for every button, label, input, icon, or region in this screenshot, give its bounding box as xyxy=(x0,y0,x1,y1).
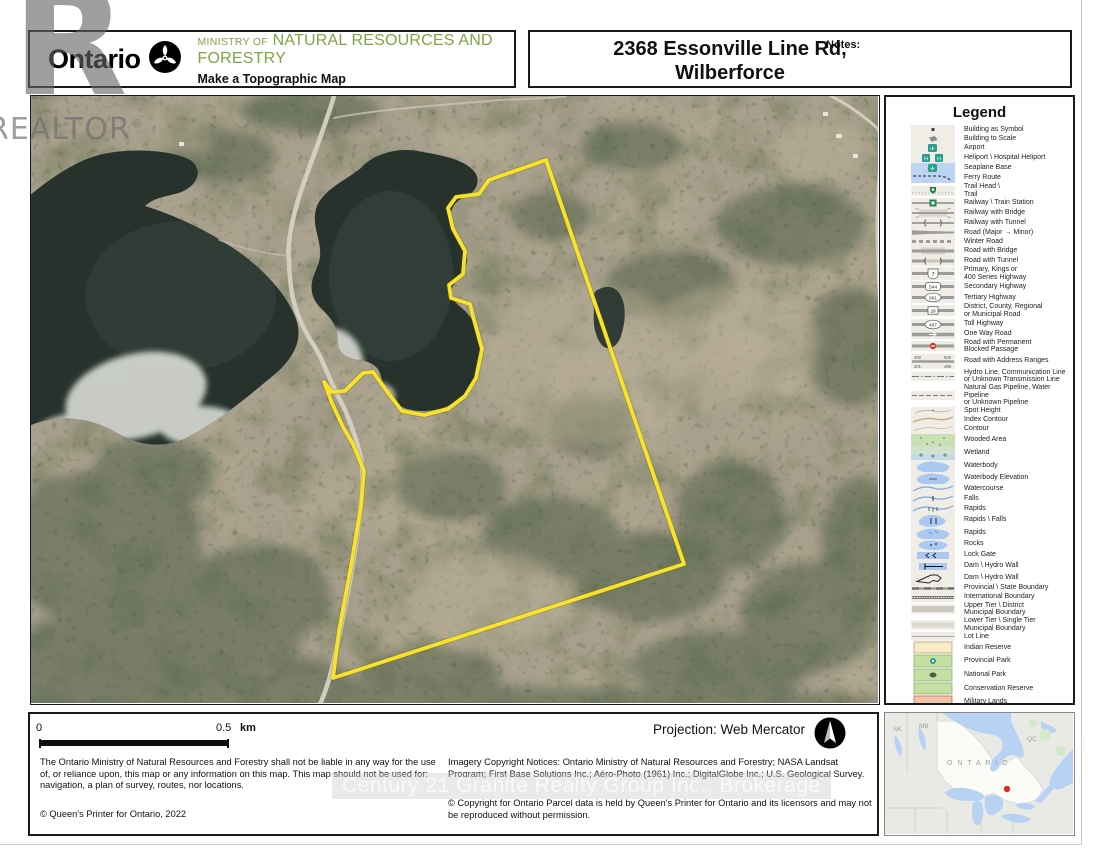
legend-symbol-upper-tier-icon xyxy=(910,604,956,614)
legend-item: 407Toll Highway xyxy=(886,319,1073,330)
ontario-logo: Ontario xyxy=(48,40,182,79)
app-title: Make a Topographic Map xyxy=(198,72,514,86)
legend-item: Road with Bridge xyxy=(886,246,1073,256)
legend-item-label: Military Lands xyxy=(964,698,1007,705)
legend-symbol-dam2-icon xyxy=(910,572,956,584)
title-notes-box: 2368 Essonville Line Rd, Wilberforce Not… xyxy=(528,30,1072,88)
legend-item-label: Rapids xyxy=(964,529,986,537)
inset-label-mb: MB xyxy=(919,723,929,730)
legend-item: Ferry Route xyxy=(886,173,1073,183)
legend-item-label: Road (Major → Minor) xyxy=(964,229,1033,237)
legend-symbol-oneway-icon xyxy=(910,330,956,339)
svg-text:✈: ✈ xyxy=(930,166,935,173)
legend-item: 28District, County, Regional or Municipa… xyxy=(886,303,1073,318)
legend-item: Road with Permanent Blocked Passage xyxy=(886,339,1073,354)
legend-symbol-railway-tunnel-icon xyxy=(910,218,956,228)
legend-symbol-toll-hwy-icon: 407 xyxy=(910,319,956,330)
legend-item-label: Heliport \ Hospital Heliport xyxy=(964,154,1045,162)
svg-text:407: 407 xyxy=(929,322,937,327)
legend-item-label: Road with Tunnel xyxy=(964,257,1018,265)
legend-symbol-rocks-icon xyxy=(910,539,956,550)
legend-item-label: Building to Scale xyxy=(964,135,1016,143)
legend-item-label: Dam \ Hydro Wall xyxy=(964,562,1019,570)
legend-symbol-airport-icon: ✈ xyxy=(910,143,956,153)
legend-symbol-contour-icon xyxy=(910,425,956,434)
legend-item: Trail Head \ Trail xyxy=(886,183,1073,198)
north-arrow-icon xyxy=(813,716,847,755)
legend-item: Building as Symbol xyxy=(886,125,1073,134)
legend-item-label: One Way Road xyxy=(964,330,1012,338)
legend-symbol-road-major-minor-icon xyxy=(910,228,956,237)
legend-item-label: Road with Bridge xyxy=(964,247,1017,255)
legend-title: Legend xyxy=(886,104,1073,121)
legend-item-label: Primary, Kings or 400 Series Highway xyxy=(964,266,1026,281)
legend-symbol-watercourse-icon xyxy=(910,484,956,494)
legend-panel: Legend Building as SymbolBuilding to Sca… xyxy=(884,95,1075,705)
legend-symbol-indian-reserve-icon xyxy=(910,641,956,654)
disclaimer-text: The Ontario Ministry of Natural Resource… xyxy=(40,757,440,792)
svg-text:401: 401 xyxy=(914,364,922,369)
legend-item-label: Winter Road xyxy=(964,238,1003,246)
legend-symbol-secondary-hwy-icon: 544 xyxy=(910,281,956,292)
scale-unit-label: km xyxy=(240,722,256,734)
svg-text:400: 400 xyxy=(914,355,922,360)
projection-label: Projection: Web Mercator xyxy=(653,722,805,737)
svg-text:544: 544 xyxy=(929,285,937,291)
legend-item: Waterbody Elevation xyxy=(886,472,1073,484)
legend-item: Dam \ Hydro Wall xyxy=(886,561,1073,572)
legend-symbol-railway-bridge-icon xyxy=(910,208,956,218)
legend-symbol-rapids-line-icon xyxy=(910,504,956,514)
legend-item: Indian Reserve xyxy=(886,641,1073,654)
legend-item: Watercourse xyxy=(886,484,1073,494)
notes-label: Notes: xyxy=(826,39,860,51)
trillium-icon xyxy=(148,40,182,79)
aerial-map-canvas xyxy=(31,96,878,703)
svg-text:801: 801 xyxy=(929,296,937,301)
legend-symbol-building-symbol-icon xyxy=(910,125,956,134)
legend-item: International Boundary xyxy=(886,593,1073,602)
legend-item-label: Road with Permanent Blocked Passage xyxy=(964,339,1031,354)
legend-symbol-rapids-falls-icon xyxy=(910,514,956,527)
legend-item: Winter Road xyxy=(886,237,1073,246)
legend-item-label: District, County, Regional or Municipal … xyxy=(964,303,1042,318)
legend-item: Dam \ Hydro Wall xyxy=(886,572,1073,584)
legend-item-label: Natural Gas Pipeline, Water Pipeline or … xyxy=(964,384,1073,407)
legend-item: Falls xyxy=(886,494,1073,504)
svg-text:500: 500 xyxy=(944,355,952,360)
legend-item-label: Wooded Area xyxy=(964,436,1006,444)
inset-label-ontario: O N T A R I O xyxy=(947,760,1009,767)
legend-item-label: Rapids xyxy=(964,505,986,513)
legend-item-label: Provincial \ State Boundary xyxy=(964,584,1048,592)
legend-item-label: Railway \ Train Station xyxy=(964,199,1034,207)
legend-symbol-road-tunnel-icon xyxy=(910,256,956,266)
legend-items: Building as SymbolBuilding to Scale✈Airp… xyxy=(886,125,1073,705)
legend-item: Rapids xyxy=(886,504,1073,514)
legend-symbol-wetland-icon xyxy=(910,447,956,460)
legend-symbol-seaplane-icon: ✈ xyxy=(910,163,956,173)
inset-label-sk: SK xyxy=(893,726,902,733)
legend-item-label: Rapids \ Falls xyxy=(964,516,1006,524)
legend-item-label: Road with Address Ranges xyxy=(964,357,1048,365)
svg-text:28: 28 xyxy=(930,309,936,315)
legend-item-label: Trail Head \ Trail xyxy=(964,183,1000,198)
legend-item: Wooded Area xyxy=(886,434,1073,447)
legend-item: Railway with Bridge xyxy=(886,208,1073,218)
legend-item: Conservation Reserve xyxy=(886,682,1073,695)
legend-item-label: Contour xyxy=(964,425,989,433)
legend-item-label: Lock Gate xyxy=(964,551,996,559)
legend-symbol-lot-line-icon xyxy=(910,632,956,641)
legend-item-label: Wetland xyxy=(964,449,990,457)
imagery-copyright-text: Imagery Copyright Notices: Ontario Minis… xyxy=(448,757,872,780)
svg-text:499: 499 xyxy=(944,364,952,369)
legend-symbol-index-contour-icon xyxy=(910,416,956,425)
legend-item: Rapids \ Falls xyxy=(886,514,1073,527)
legend-item: Lower Tier \ Single Tier Municipal Bound… xyxy=(886,617,1073,632)
legend-symbol-falls-icon xyxy=(910,494,956,504)
scale-bar xyxy=(39,740,229,746)
legend-symbol-rapids-poly-icon xyxy=(910,527,956,539)
topographic-map-page: Ontario MINISTRY OF NATURAL RESOURCES A xyxy=(0,0,1100,850)
inset-location-marker xyxy=(1004,786,1010,792)
legend-item: 400500401499Road with Address Ranges xyxy=(886,354,1073,369)
legend-item-label: Provincial Park xyxy=(964,657,1011,665)
footer-panel: 0 0.5 km Projection: Web Mercator The On… xyxy=(28,712,879,836)
legend-symbol-municipal-road-icon: 28 xyxy=(910,305,956,316)
ministry-of-label: MINISTRY OF xyxy=(198,36,269,48)
legend-item-label: Indian Reserve xyxy=(964,644,1011,652)
legend-item: Contour xyxy=(886,425,1073,434)
legend-symbol-pipeline-icon xyxy=(910,391,956,400)
legend-item: Building to Scale xyxy=(886,134,1073,143)
legend-symbol-address-ranges-icon: 400500401499 xyxy=(910,354,956,369)
legend-item: Provincial Park xyxy=(886,654,1073,668)
legend-symbol-military-icon xyxy=(910,695,956,705)
legend-item-label: International Boundary xyxy=(964,593,1034,601)
legend-item: National Park xyxy=(886,668,1073,682)
legend-symbol-hydro-line-icon xyxy=(910,372,956,381)
legend-item: 544Secondary Highway xyxy=(886,281,1073,292)
legend-item: Road (Major → Minor) xyxy=(886,228,1073,237)
legend-item: Waterbody xyxy=(886,460,1073,472)
svg-text:✈: ✈ xyxy=(930,146,935,153)
legend-item-label: Secondary Highway xyxy=(964,283,1026,291)
legend-item: Index Contour xyxy=(886,416,1073,425)
legend-item-label: Conservation Reserve xyxy=(964,685,1033,693)
legend-item-label: Waterbody Elevation xyxy=(964,474,1028,482)
scale-distance-label: 0.5 xyxy=(216,722,231,734)
legend-item-label: Seaplane Base xyxy=(964,164,1011,172)
legend-symbol-waterbody-icon xyxy=(910,460,956,472)
legend-symbol-conservation-icon xyxy=(910,682,956,695)
legend-symbol-heliport-icon: HH xyxy=(910,153,956,163)
legend-item-label: Index Contour xyxy=(964,416,1008,424)
ministry-title-block: MINISTRY OF NATURAL RESOURCES AND FOREST… xyxy=(198,32,514,86)
legend-symbol-prov-boundary-icon xyxy=(910,584,956,593)
legend-item: ✈Seaplane Base xyxy=(886,163,1073,173)
legend-symbol-road-bridge-icon xyxy=(910,246,956,256)
legend-item-label: Railway with Tunnel xyxy=(964,219,1026,227)
locator-inset-map: SK MB O N T A R I O QC xyxy=(884,712,1075,836)
legend-item-label: Building as Symbol xyxy=(964,126,1024,134)
legend-item-label: Lot Line xyxy=(964,633,989,641)
legend-item: Military Lands xyxy=(886,695,1073,705)
legend-symbol-building-scale-icon xyxy=(910,134,956,143)
legend-item: Natural Gas Pipeline, Water Pipeline or … xyxy=(886,384,1073,407)
legend-symbol-lower-tier-icon xyxy=(910,620,956,630)
legend-symbol-blocked-icon xyxy=(910,341,956,351)
legend-item: Upper Tier \ District Municipal Boundary xyxy=(886,602,1073,617)
queens-printer-text: © Queen's Printer for Ontario, 2022 xyxy=(40,809,186,821)
legend-item-label: Hydro Line, Communication Line or Unknow… xyxy=(964,369,1066,384)
legend-symbol-railway-station-icon xyxy=(910,198,956,208)
legend-item-label: Falls xyxy=(964,495,979,503)
legend-item-label: Airport xyxy=(964,144,985,152)
legend-symbol-wooded-icon xyxy=(910,434,956,447)
legend-symbol-lock-gate-icon xyxy=(910,550,956,561)
legend-symbol-dam-icon xyxy=(910,561,956,572)
legend-symbol-tertiary-hwy-icon: 801 xyxy=(910,292,956,303)
scale-zero-label: 0 xyxy=(36,722,42,734)
legend-item: Provincial \ State Boundary xyxy=(886,584,1073,593)
legend-item: Road with Tunnel xyxy=(886,256,1073,266)
legend-item: One Way Road xyxy=(886,330,1073,339)
legend-item-label: Waterbody xyxy=(964,462,998,470)
legend-item-label: Railway with Bridge xyxy=(964,209,1025,217)
legend-item-label: Upper Tier \ District Municipal Boundary xyxy=(964,602,1025,617)
legend-symbol-winter-road-icon xyxy=(910,237,956,246)
svg-text:H: H xyxy=(937,156,941,162)
legend-item: Hydro Line, Communication Line or Unknow… xyxy=(886,369,1073,384)
legend-item: Rocks xyxy=(886,539,1073,550)
svg-text:7: 7 xyxy=(931,272,934,278)
legend-item-label: Lower Tier \ Single Tier Municipal Bound… xyxy=(964,617,1036,632)
legend-symbol-natl-park-icon xyxy=(910,668,956,682)
legend-item: Railway with Tunnel xyxy=(886,218,1073,228)
legend-item: Lot Line xyxy=(886,632,1073,641)
legend-item-label: Rocks xyxy=(964,540,983,548)
map-image xyxy=(30,95,880,705)
legend-symbol-prov-park-icon xyxy=(910,654,956,668)
legend-symbol-ferry-icon xyxy=(910,173,956,183)
legend-symbol-waterbody-elev-icon xyxy=(910,472,956,484)
legend-item: Rapids xyxy=(886,527,1073,539)
legend-item-label: National Park xyxy=(964,671,1006,679)
legend-symbol-spot-height-icon xyxy=(910,407,956,416)
legend-item: 801Tertiary Highway xyxy=(886,292,1073,303)
legend-item: Railway \ Train Station xyxy=(886,198,1073,208)
legend-symbol-primary-hwy-icon: 7 xyxy=(910,267,956,280)
legend-item: ✈Airport xyxy=(886,143,1073,153)
svg-text:H: H xyxy=(924,156,928,162)
inset-label-qc: QC xyxy=(1027,736,1037,743)
legend-item: HHHeliport \ Hospital Heliport xyxy=(886,153,1073,163)
legend-item-label: Dam \ Hydro Wall xyxy=(964,574,1019,582)
legend-symbol-trail-icon xyxy=(910,186,956,196)
legend-item: Wetland xyxy=(886,447,1073,460)
legend-item-label: Toll Highway xyxy=(964,320,1003,328)
legend-item-label: Watercourse xyxy=(964,485,1003,493)
legend-item-label: Ferry Route xyxy=(964,174,1001,182)
map-title-line2: Wilberforce xyxy=(585,61,875,85)
header-branding-box: Ontario MINISTRY OF NATURAL RESOURCES A xyxy=(28,30,516,88)
legend-item-label: Spot Height xyxy=(964,407,1001,415)
legend-item-label: Tertiary Highway xyxy=(964,294,1016,302)
ontario-logo-text: Ontario xyxy=(48,44,141,75)
parcel-copyright-text: © Copyright for Ontario Parcel data is h… xyxy=(448,798,878,821)
legend-symbol-intl-boundary-icon xyxy=(910,593,956,602)
legend-item: Spot Height xyxy=(886,407,1073,416)
legend-item: Lock Gate xyxy=(886,550,1073,561)
legend-item: 7Primary, Kings or 400 Series Highway xyxy=(886,266,1073,281)
